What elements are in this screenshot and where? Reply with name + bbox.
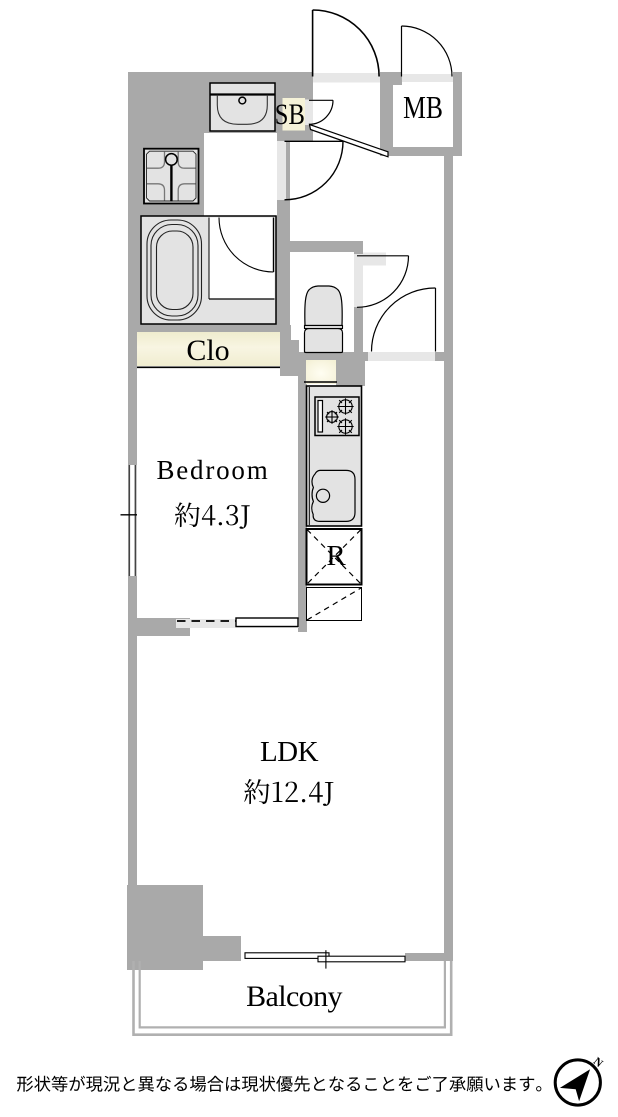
svg-text:R: R [326, 540, 346, 572]
svg-text:Clo: Clo [186, 334, 229, 367]
svg-text:Bedroom: Bedroom [156, 455, 269, 485]
svg-text:MB: MB [403, 91, 443, 126]
svg-text:LDK: LDK [260, 736, 319, 768]
svg-text:Balcony: Balcony [246, 980, 342, 1013]
svg-text:SB: SB [275, 98, 305, 131]
